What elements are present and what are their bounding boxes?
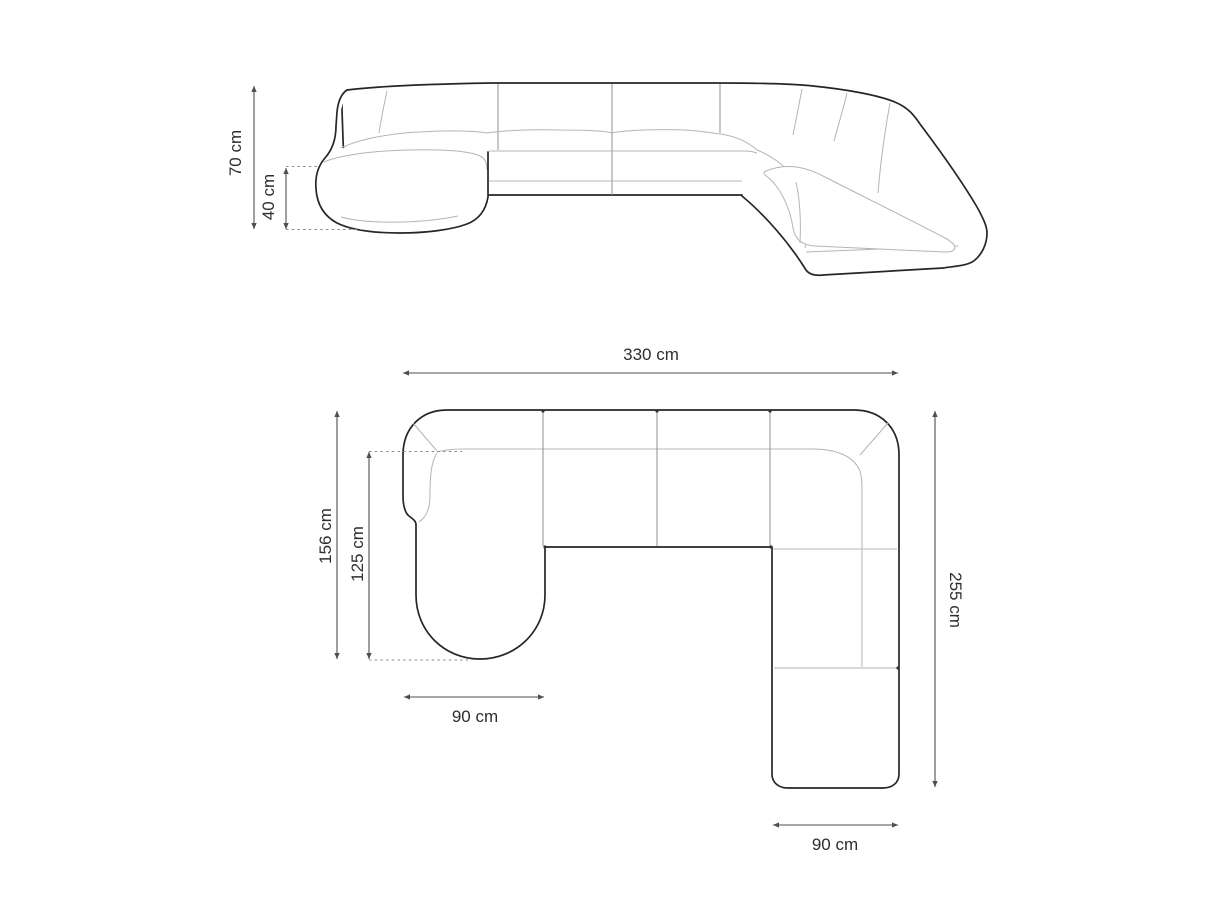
seam-junction-dot [543, 545, 546, 548]
dim-label-chaise-depth-from-back: 125 cm [348, 526, 367, 582]
plan-outline [403, 410, 899, 788]
dim-label-end-module-width: 90 cm [812, 835, 858, 854]
seam-junction-dot [655, 409, 658, 412]
seam-junction-dot [541, 409, 544, 412]
diagram-svg: 70 cm 40 cm 330 cm 156 cm [0, 0, 1214, 911]
dim-label-chaise-depth-total: 156 cm [316, 508, 335, 564]
dim-label-seat-height: 40 cm [259, 174, 278, 220]
top-plan-view: 330 cm 156 cm 125 cm 90 cm 255 cm 90 cm [316, 345, 965, 854]
dim-label-total-height: 70 cm [226, 130, 245, 176]
seam-junction-dot [769, 545, 772, 548]
front-elevation-view: 70 cm 40 cm [226, 83, 987, 275]
dim-label-total-width: 330 cm [623, 345, 679, 364]
dim-label-total-depth: 255 cm [946, 572, 965, 628]
seam-junction-dot [768, 409, 771, 412]
dim-label-chaise-width: 90 cm [452, 707, 498, 726]
seam-junction-dot [896, 666, 899, 669]
sofa-dimension-diagram: 70 cm 40 cm 330 cm 156 cm [0, 0, 1214, 911]
